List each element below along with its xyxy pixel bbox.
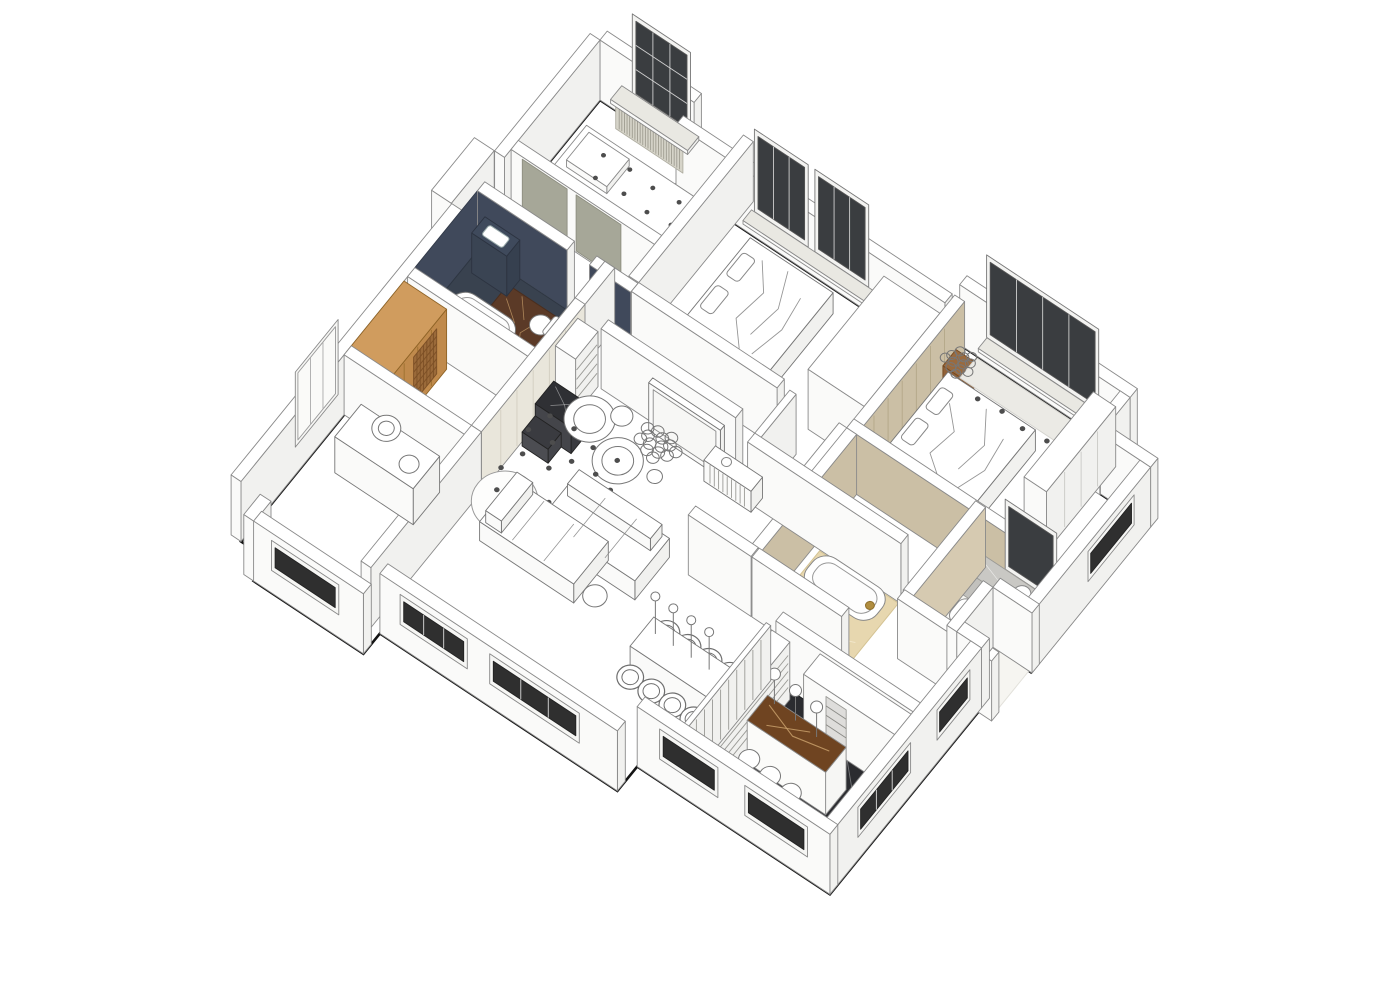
axonometric-apartment-floorplan [0, 0, 1400, 989]
floorplan-canvas [0, 0, 1400, 989]
